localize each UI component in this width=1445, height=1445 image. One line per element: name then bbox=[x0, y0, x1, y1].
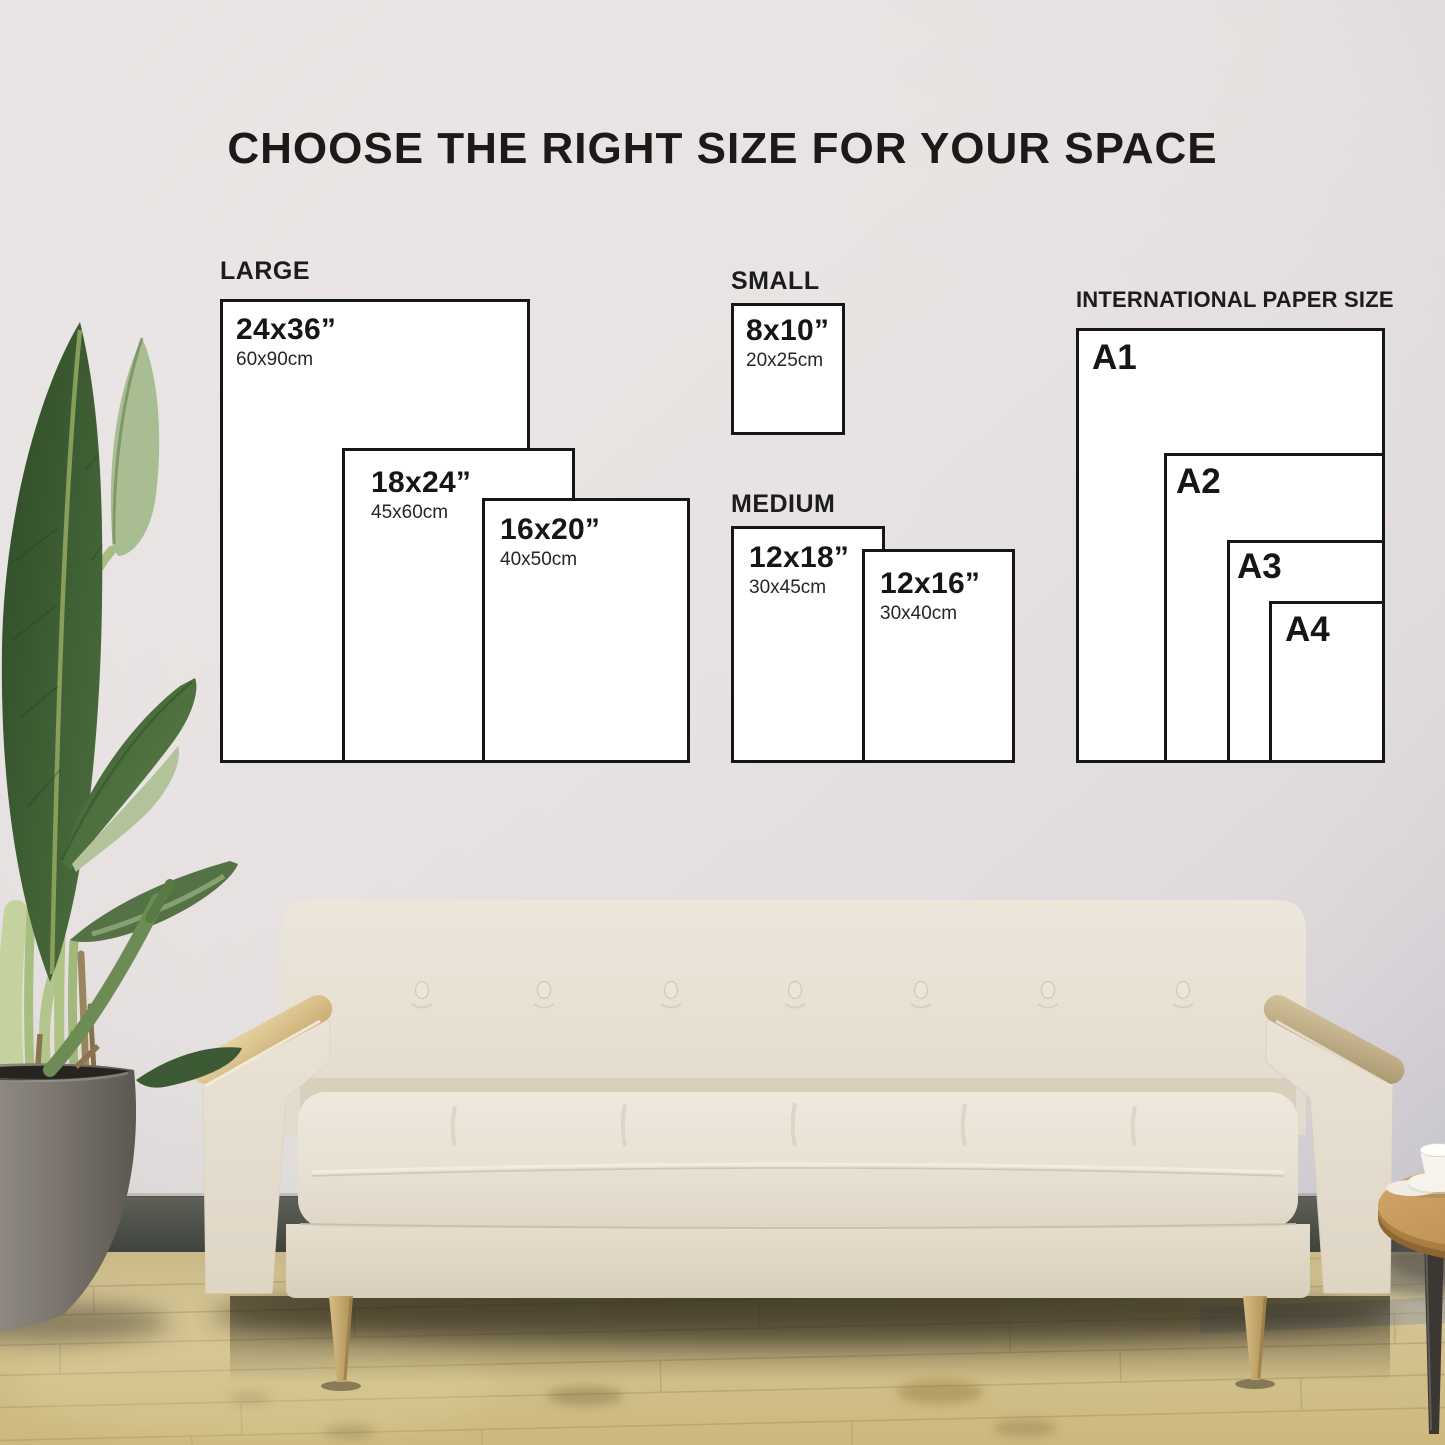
size-box-12x16: 12x16” 30x40cm bbox=[862, 549, 1015, 763]
group-label-medium: MEDIUM bbox=[731, 491, 835, 519]
size-box-8x10: 8x10” 20x25cm bbox=[731, 303, 845, 435]
group-label-large: LARGE bbox=[220, 258, 310, 286]
size-inches: 24x36” bbox=[236, 314, 527, 346]
size-cm: 30x40cm bbox=[880, 603, 1012, 625]
size-name: A2 bbox=[1176, 464, 1382, 499]
size-inches: 18x24” bbox=[371, 467, 572, 499]
size-cm: 20x25cm bbox=[746, 350, 842, 372]
page-title: CHOOSE THE RIGHT SIZE FOR YOUR SPACE bbox=[0, 124, 1445, 174]
size-cm: 40x50cm bbox=[500, 549, 687, 571]
seat-cushion bbox=[298, 1092, 1298, 1228]
product-size-guide: CHOOSE THE RIGHT SIZE FOR YOUR SPACE LAR… bbox=[0, 0, 1445, 1445]
size-name: A1 bbox=[1092, 340, 1382, 375]
size-inches: 16x20” bbox=[500, 514, 687, 546]
group-label-international: INTERNATIONAL PAPER SIZE bbox=[1076, 288, 1394, 312]
group-label-small: SMALL bbox=[731, 268, 820, 296]
sofa-base bbox=[286, 1224, 1310, 1298]
size-name: A4 bbox=[1285, 612, 1382, 647]
size-inches: 8x10” bbox=[746, 315, 842, 347]
size-cm: 60x90cm bbox=[236, 349, 527, 371]
size-box-16x20: 16x20” 40x50cm bbox=[482, 498, 690, 763]
size-name: A3 bbox=[1237, 549, 1382, 584]
size-inches: 12x16” bbox=[880, 568, 1012, 600]
under-sofa-shadow bbox=[230, 1296, 1390, 1382]
size-box-a4: A4 bbox=[1269, 601, 1385, 763]
